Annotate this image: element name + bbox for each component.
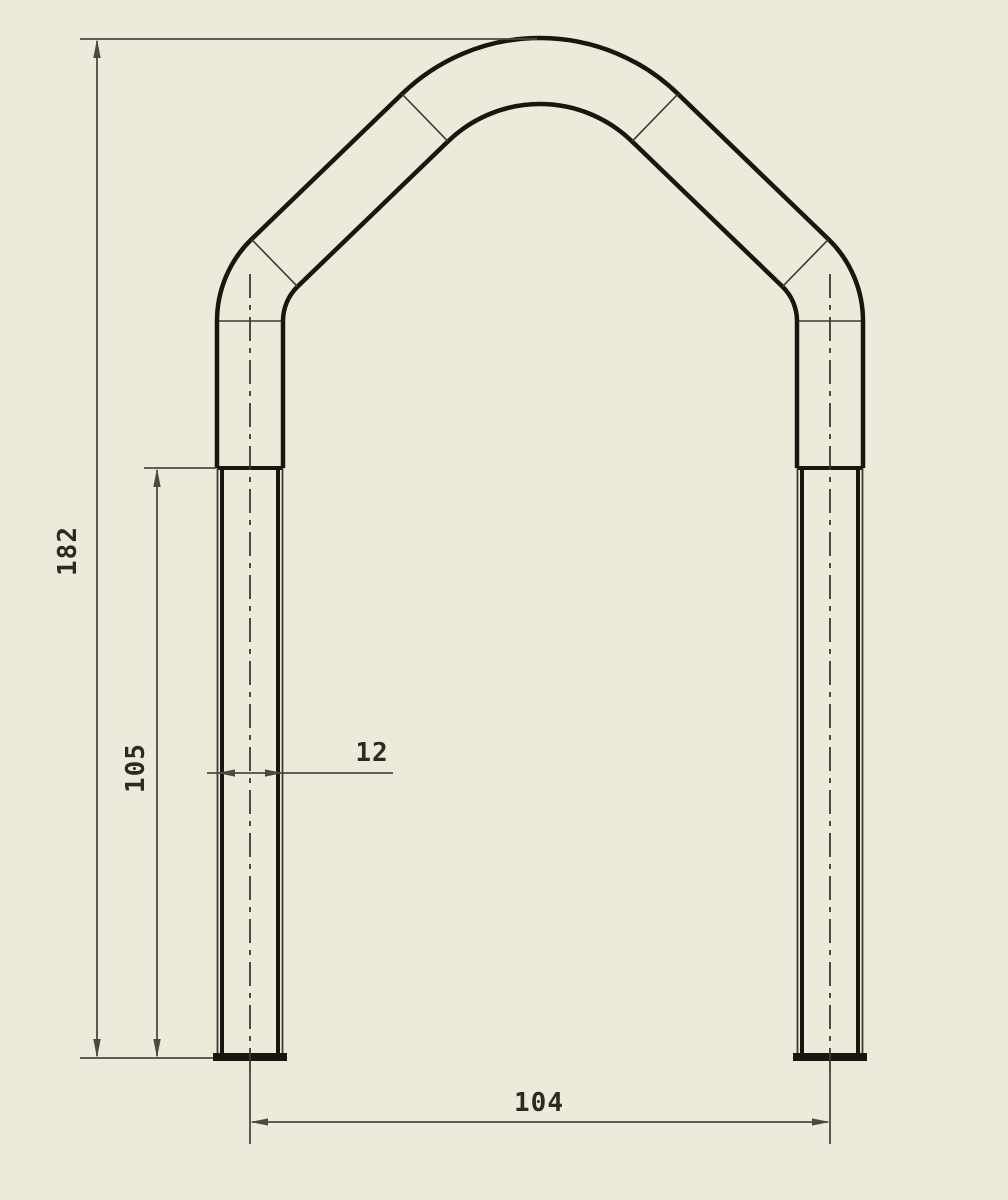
inner-profile: [283, 104, 797, 468]
dim-overall-height: [80, 39, 537, 1058]
dim-label-rod-diameter: 12: [355, 738, 388, 768]
dim-rod-diameter: [207, 769, 393, 776]
u-bolt-drawing: [0, 0, 1008, 1200]
dim-label-overall-height: 182: [53, 526, 83, 576]
dim-thread-length: [144, 468, 216, 1058]
dim-label-leg-spacing: 104: [514, 1088, 564, 1118]
tangent-lines: [219, 94, 861, 321]
threaded-sections: [213, 468, 867, 1057]
u-bolt-outline: [217, 38, 863, 468]
centerlines: [250, 274, 830, 1072]
dim-label-thread-length: 105: [121, 743, 151, 793]
drawing-canvas: 182 105 12 104: [0, 0, 1008, 1200]
